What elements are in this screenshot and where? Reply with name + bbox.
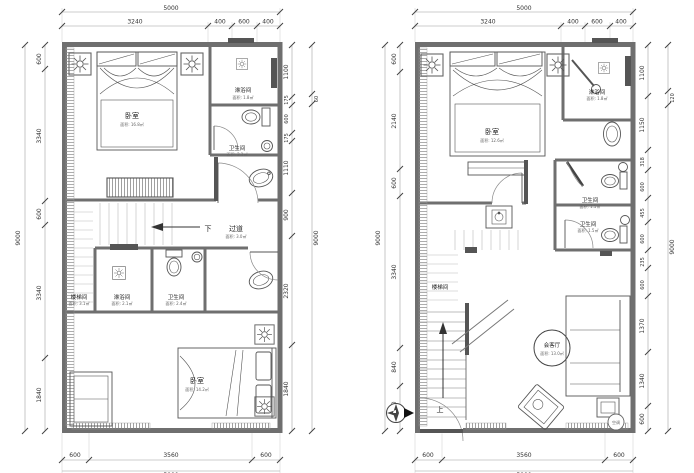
vanity-basin-icon (604, 122, 621, 146)
up-label: 上 (437, 405, 444, 414)
room-label-living: 会客厅 (544, 341, 561, 349)
room-label-stairwell: 楼梯间 (432, 283, 449, 291)
dim-right-offset: 60 (314, 96, 320, 102)
toilet-icon (602, 226, 628, 243)
dim-bot-2: 3560 (163, 452, 178, 459)
dim-lchain-2: 2140 (391, 113, 398, 128)
dim-rchain-3: 318 (640, 157, 646, 167)
vent-icon (599, 63, 610, 74)
dim-rchain-6: 600 (640, 234, 646, 244)
left-plan: 5000 3240 400 600 400 9000 600 3340 600 … (15, 5, 320, 473)
dim-lchain-1: 600 (36, 53, 43, 65)
armchair (518, 384, 565, 430)
room-label-shower-top: 淋浴间 (235, 86, 252, 94)
hand-basin-icon (621, 216, 630, 225)
window-sill (466, 423, 506, 429)
down-label: 下 (205, 225, 212, 233)
dim-rchain-11: 600 (639, 413, 646, 425)
door-arc (492, 173, 522, 203)
dim-bot-2: 3560 (516, 452, 531, 459)
dim-top-2: 400 (567, 19, 579, 26)
vent-bar (110, 244, 138, 250)
dim-lchain-1: 600 (391, 53, 398, 65)
room-label-wc-bottom: 卫生间 (580, 220, 597, 228)
dim-rchain-7: 235 (640, 257, 646, 267)
dim-lchain-5: 840 (391, 361, 398, 373)
dim-rchain-5: 455 (640, 208, 646, 218)
right-plan-labels: 卧室 面积: 12.6㎡ 淋浴间 面积: 1.8㎡ 卫生间 面积: 1.5㎡ 卫… (432, 88, 620, 425)
hand-basin-icon (262, 141, 273, 152)
dim-rchain-8: 1840 (283, 381, 290, 396)
dim-top-4: 400 (615, 19, 627, 26)
shower-room (572, 56, 631, 94)
sofa (70, 372, 112, 426)
shower-head-icon (113, 267, 126, 280)
dim-bot-3: 600 (260, 452, 272, 459)
room-area: 面积: 1.5㎡ (580, 203, 601, 209)
dim-lchain-5: 1840 (36, 387, 43, 402)
dim-bot-1: 600 (422, 452, 434, 459)
toilet-icon (242, 108, 270, 126)
room-area: 面积: 12.6㎡ (480, 137, 504, 143)
room-label-stairwell: 楼梯间 (71, 293, 88, 301)
down-arrow (151, 223, 200, 231)
dim-rchain-9: 1370 (639, 318, 646, 333)
dim-rchain-7: 2320 (283, 283, 290, 298)
window-lintel (592, 38, 618, 43)
toilet-icon (602, 172, 628, 189)
room-area: 面积: 1.5㎡ (578, 227, 599, 233)
shower-room-top (237, 58, 278, 88)
stair-treads (420, 230, 518, 420)
dim-rchain-3: 600 (284, 114, 290, 124)
room-label-bedroom-bottom: 卧室 (190, 376, 204, 385)
dim-top-total: 5000 (163, 5, 178, 12)
dim-top-2: 400 (214, 19, 226, 26)
dim-bot-3: 600 (613, 452, 625, 459)
room-area: 面积: 16.8㎡ (120, 121, 144, 127)
dim-lchain-3: 600 (391, 177, 398, 189)
room-label-bedroom: 卧室 (485, 127, 499, 136)
left-plan-fixtures (68, 52, 278, 426)
stair-flight-above (107, 178, 173, 197)
vent-bar (600, 251, 612, 256)
shower-panel (271, 58, 277, 88)
room-area: 面积: 2.1㎡ (227, 151, 248, 157)
wardrobe-wall-hatch (66, 48, 74, 426)
dim-top-1: 3240 (480, 19, 495, 26)
door-leaf-open (567, 162, 583, 186)
dim-rchain-1: 1100 (283, 64, 290, 79)
room-area: 面积: 1.8㎡ (233, 94, 254, 100)
dim-lchain-4: 3340 (391, 264, 398, 279)
dim-rchain-10: 1340 (639, 373, 646, 388)
hand-basin-icon (192, 252, 202, 262)
bed-double (450, 52, 545, 175)
room-area: 面积: 3.0㎡ (226, 233, 247, 239)
bed-double (97, 52, 177, 150)
hand-basin-icon (619, 163, 628, 172)
room-area: 面积: 3.1㎡ (69, 300, 90, 306)
floorplan-canvas: 5000 3240 400 600 400 9000 600 3340 600 … (0, 0, 694, 473)
dim-rchain-4: 175 (284, 133, 290, 143)
dim-right-offset: 120 (670, 93, 676, 103)
stair-break-line (452, 300, 514, 352)
dim-top-3: 600 (238, 19, 250, 26)
dim-right-total: 9000 (313, 230, 320, 245)
vent-bar (465, 247, 477, 253)
dim-rchain-8: 600 (640, 280, 646, 290)
room-label-wc-top: 卫生间 (582, 196, 599, 204)
dim-left-total: 9000 (15, 230, 22, 245)
stair-treads (68, 203, 172, 302)
dim-rchain-6: 900 (283, 209, 290, 221)
toilet-icon (166, 250, 182, 276)
vent-icon (237, 59, 248, 70)
room-label-wc-top: 卫生间 (229, 144, 246, 152)
dim-top-1: 3240 (127, 19, 142, 26)
room-label-bedroom-top: 卧室 (125, 111, 139, 120)
window-sill (212, 423, 270, 429)
stair-washbasin (486, 206, 512, 228)
dim-rchain-4: 600 (640, 182, 646, 192)
room-label-shower-mid: 淋浴间 (114, 293, 131, 301)
left-plan-labels: 卧室 面积: 16.8㎡ 淋浴间 面积: 1.8㎡ 卫生间 面积: 2.1㎡ 下… (69, 86, 254, 392)
dim-lchain-2: 3340 (36, 128, 43, 143)
vanity-basin-icon (247, 166, 275, 190)
room-label-shower: 淋浴间 (589, 88, 606, 96)
window-lintel (228, 38, 254, 43)
dim-rchain-1: 1100 (639, 65, 646, 80)
dim-rchain-2: 175 (284, 95, 290, 105)
dim-top-total: 5000 (516, 5, 531, 12)
door-jamb (214, 157, 218, 201)
north-arrow-icon (387, 404, 415, 423)
right-plan: 5000 3240 400 600 400 9000 600 2140 600 … (375, 5, 676, 473)
plant-icon (255, 325, 274, 344)
dim-top-3: 600 (591, 19, 603, 26)
shower-panel (625, 56, 631, 86)
room-area: 面积: 2.4㎡ (166, 300, 187, 306)
room-area: 面积: 13.0㎡ (540, 350, 564, 356)
room-area: 面积: 14.2㎡ (185, 386, 209, 392)
dim-left-total: 9000 (375, 230, 382, 245)
room-area: 面积: 2.1㎡ (112, 300, 133, 306)
sofa (566, 296, 630, 396)
dim-bot-1: 600 (69, 452, 81, 459)
dim-lchain-3: 600 (36, 208, 43, 220)
plant-icon (181, 53, 203, 75)
dim-top-4: 400 (262, 19, 274, 26)
room-area: 面积: 1.8㎡ (587, 95, 608, 101)
door-arc (218, 163, 258, 203)
plant-icon (547, 54, 569, 76)
door-leaf (420, 429, 463, 433)
dim-lchain-4: 3340 (36, 285, 43, 300)
room-label-corridor: 过道 (229, 224, 243, 233)
dim-rchain-5: 1110 (283, 160, 290, 175)
door-arc (250, 252, 278, 280)
dim-right-total: 9000 (669, 239, 676, 254)
dim-rchain-2: 1150 (639, 117, 646, 132)
floorplan-sheet: 5000 3240 400 600 400 9000 600 3340 600 … (0, 0, 694, 473)
ac-label: 空调 (612, 419, 620, 425)
room-label-wc-mid: 卫生间 (168, 293, 185, 301)
vanity-basin-icon (247, 268, 275, 292)
